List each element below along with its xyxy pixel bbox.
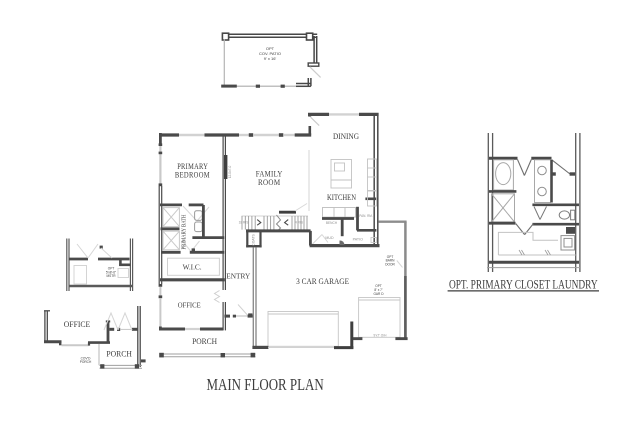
svg-text:PORCH: PORCH (192, 337, 217, 346)
svg-text:PORCH: PORCH (80, 360, 92, 364)
svg-text:9'x7' O/H: 9'x7' O/H (374, 333, 388, 337)
svg-text:ROOM: ROOM (258, 178, 281, 187)
svg-text:DOOR: DOOR (385, 262, 395, 266)
svg-text:PATIO: PATIO (353, 238, 363, 242)
svg-text:9' x 16': 9' x 16' (264, 56, 277, 61)
svg-text:OFFICE: OFFICE (64, 320, 91, 329)
svg-text:BENCH: BENCH (326, 221, 338, 225)
svg-text:W.I.C.: W.I.C. (183, 262, 202, 271)
svg-text:COATS: COATS (252, 234, 256, 246)
svg-text:12-0x7-0: 12-0x7-0 (228, 165, 232, 178)
svg-text:PRIMARY BATH: PRIMARY BATH (182, 214, 188, 250)
svg-text:MAIN FLOOR PLAN: MAIN FLOOR PLAN (207, 375, 324, 394)
svg-text:BEDROOM: BEDROOM (175, 171, 210, 180)
svg-text:DINING: DINING (333, 132, 359, 141)
svg-text:MSTR: MSTR (106, 274, 116, 278)
svg-text:PAN. RM.: PAN. RM. (359, 214, 373, 218)
svg-text:ENTRY: ENTRY (226, 272, 250, 281)
svg-text:4 RIS: 4 RIS (295, 220, 303, 224)
svg-text:OFFICE: OFFICE (178, 300, 201, 309)
svg-text:KITCHEN: KITCHEN (327, 193, 356, 202)
svg-text:MUD: MUD (325, 236, 334, 240)
svg-text:18 RIS: 18 RIS (239, 220, 249, 224)
svg-text:OPT. PRIMARY CLOSET LAUNDRY: OPT. PRIMARY CLOSET LAUNDRY (449, 277, 598, 291)
svg-text:GAR D: GAR D (373, 292, 384, 296)
svg-text:PORCH: PORCH (106, 350, 132, 359)
svg-text:PRIMARY: PRIMARY (177, 162, 208, 171)
svg-text:3 CAR GARAGE: 3 CAR GARAGE (296, 277, 349, 286)
